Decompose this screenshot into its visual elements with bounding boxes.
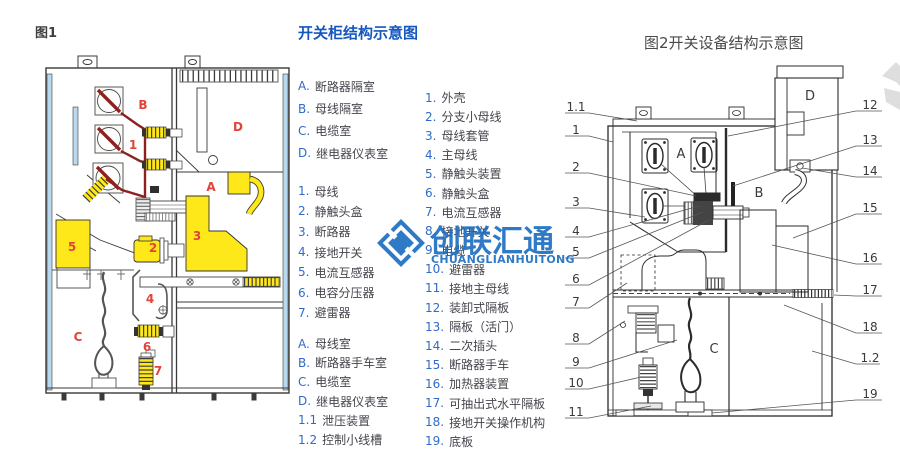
legend-item: 12.装卸式隔板: [425, 298, 545, 317]
legend-item: A.断路器隔室: [298, 75, 388, 97]
fig2-callout-14: 14: [862, 164, 877, 178]
legend-item: B.母线隔室: [298, 97, 388, 119]
legend-item-marker: 5.: [425, 167, 436, 181]
legend-item-text: 接地主母线: [449, 280, 509, 297]
legend-item-marker: C.: [298, 124, 310, 138]
page: 图1 开关柜结构示意图 图2开关设备结构示意图 A.断路器隔室B.母线隔室C.电…: [0, 0, 900, 474]
legend-item: 1.母线: [298, 181, 374, 201]
fig2-callout-17: 17: [862, 283, 877, 297]
legend-item-text: 二次插头: [449, 337, 497, 354]
legend-item-text: 隔板（活门）: [449, 318, 521, 335]
legend-item-text: 断路器: [314, 223, 350, 240]
legend-compartments-fig2: A.母线室B.断路器手车室C.电缆室D.继电器仪表室1.1泄压装置1.2控制小线…: [298, 334, 388, 449]
legend-item: 1.1泄压装置: [298, 411, 388, 430]
legend-item: 14.二次插头: [425, 336, 545, 355]
legend-parts-fig1: 1.母线2.静触头盒3.断路器4.接地开关5.电流互感器6.电容分压器7.避雷器: [298, 181, 374, 323]
legend-item-marker: 6.: [298, 286, 309, 300]
fig1-label-3: 3: [193, 229, 201, 243]
legend-item: 11.接地主母线: [425, 279, 545, 298]
figure1-diagram: A B C D 1 2 3 4 5 6 7: [34, 50, 296, 406]
legend-item: 2.静触头盒: [298, 201, 374, 221]
fig2-callout-18: 18: [862, 320, 877, 334]
fig2-callout-11: 11: [568, 405, 583, 419]
fig1-label-7: 7: [154, 364, 162, 378]
legend-item-text: 接地开关操作机构: [449, 414, 545, 431]
fig2-label-D: D: [805, 89, 815, 104]
legend-item-text: 泄压装置: [322, 412, 370, 429]
legend-item: D.继电器仪表室: [298, 142, 388, 164]
legend-item-marker: 19.: [425, 434, 444, 448]
fig2-callout-9: 9: [572, 355, 580, 369]
figure1-caption: 图1: [35, 22, 57, 41]
legend-item-text: 静触头盒: [441, 185, 489, 202]
legend-item-text: 静触头装置: [441, 165, 501, 182]
legend-item-marker: 1.1: [298, 413, 317, 427]
legend-item-marker: 3.: [425, 129, 436, 143]
legend-item: D.继电器仪表室: [298, 392, 388, 411]
watermark-latin: CHUANGLIANHUITONG: [431, 253, 575, 266]
fig1-label-D: D: [233, 120, 243, 134]
fig2-callout-15: 15: [862, 201, 877, 215]
legend-item: B.断路器手车室: [298, 353, 388, 372]
legend-item-marker: B.: [298, 356, 310, 370]
fig1-label-1: 1: [129, 138, 137, 152]
legend-item-text: 母线室: [315, 335, 351, 352]
legend-item-marker: 12.: [425, 301, 444, 315]
legend-item: C.电缆室: [298, 372, 388, 391]
legend-item-text: 断路器手车: [449, 356, 509, 373]
fig1-label-5: 5: [68, 240, 76, 254]
legend-item-marker: A.: [298, 337, 310, 351]
fig2-callout-6: 6: [572, 272, 580, 286]
legend-item: 2.分支小母线: [425, 107, 545, 126]
legend-item: 6.静触头盒: [425, 183, 545, 202]
legend-item: 5.静触头装置: [425, 164, 545, 183]
figure2-caption: 图2开关设备结构示意图: [644, 32, 804, 53]
figure2-diagram: 1.1 1 2 3 4 5 6 7 8 9 10 11 12 13 14 15 …: [558, 55, 898, 433]
fig2-callout-10: 10: [568, 376, 583, 390]
legend-item: 3.母线套管: [425, 126, 545, 145]
legend-item-text: 加热器装置: [449, 375, 509, 392]
fig2-callout-1-2: 1.2: [860, 351, 879, 365]
legend-item: 3.断路器: [298, 222, 374, 242]
legend-item-marker: A.: [298, 79, 310, 93]
legend-item: 13.隔板（活门）: [425, 317, 545, 336]
legend-item-marker: 4.: [425, 148, 436, 162]
legend-item-text: 接地开关: [314, 244, 362, 261]
legend-compartments-fig1: A.断路器隔室B.母线隔室C.电缆室D.继电器仪表室: [298, 75, 388, 165]
legend-item-marker: 1.: [425, 91, 436, 105]
legend-item-text: 静触头盒: [314, 203, 362, 220]
legend-item-marker: D.: [298, 394, 311, 408]
fig2-callout-13: 13: [862, 133, 877, 147]
legend-item-text: 避雷器: [314, 304, 350, 321]
legend-item: C.电缆室: [298, 120, 388, 142]
fig1-label-B: B: [138, 98, 147, 112]
fig2-callout-4: 4: [572, 224, 580, 238]
legend-item-marker: 1.2: [298, 433, 317, 447]
legend-item: 4.接地开关: [298, 242, 374, 262]
legend-item: 5.电流互感器: [298, 262, 374, 282]
legend-item-marker: 11.: [425, 281, 444, 295]
legend-item-text: 断路器手车室: [315, 354, 387, 371]
legend-item-text: 电缆室: [315, 373, 351, 390]
fig2-callout-7: 7: [572, 295, 580, 309]
legend-item-text: 可抽出式水平隔板: [449, 395, 545, 412]
legend-item-text: 继电器仪表室: [316, 145, 388, 162]
legend-item-marker: C.: [298, 375, 310, 389]
legend-item-text: 断路器隔室: [315, 78, 375, 95]
legend-item-marker: D.: [298, 146, 311, 160]
legend-item-marker: 13.: [425, 320, 444, 334]
fig2-callout-19: 19: [862, 387, 877, 401]
legend-item-marker: 7.: [298, 306, 309, 320]
legend-item-marker: 4.: [298, 245, 309, 259]
fig2-label-B: B: [755, 186, 764, 201]
fig2-callout-1: 1: [572, 123, 580, 137]
fig2-callout-16: 16: [862, 251, 877, 265]
fig1-label-2: 2: [149, 241, 157, 255]
legend-item-marker: 2.: [298, 204, 309, 218]
legend-item-marker: 17.: [425, 396, 444, 410]
legend-item: 16.加热器装置: [425, 374, 545, 393]
fig2-callout-2: 2: [572, 160, 580, 174]
legend-item-text: 母线隔室: [315, 100, 363, 117]
fig1-label-4: 4: [146, 292, 154, 306]
legend-item-text: 控制小线槽: [322, 431, 382, 448]
fig2-label-C: C: [709, 342, 718, 357]
legend-item-text: 继电器仪表室: [316, 393, 388, 410]
legend-item-marker: 15.: [425, 358, 444, 372]
watermark: 创联汇通 CHUANGLIANHUITONG: [374, 204, 570, 280]
legend-item-marker: 1.: [298, 184, 309, 198]
legend-item-text: 母线套管: [441, 127, 489, 144]
legend-item: 7.避雷器: [298, 303, 374, 323]
legend-item-marker: 14.: [425, 339, 444, 353]
fig2-callout-3: 3: [572, 195, 580, 209]
legend-item-text: 电流互感器: [314, 264, 374, 281]
fig1-label-6: 6: [143, 340, 151, 354]
legend-title: 开关柜结构示意图: [298, 22, 418, 43]
legend-item: 6.电容分压器: [298, 282, 374, 302]
legend-item-text: 外壳: [441, 89, 465, 106]
fig2-callout-8: 8: [572, 331, 580, 345]
legend-item: 15.断路器手车: [425, 355, 545, 374]
legend-item-marker: 3.: [298, 225, 309, 239]
legend-item-text: 电容分压器: [314, 284, 374, 301]
watermark-logo-icon: [376, 218, 426, 268]
fig2-label-A: A: [677, 147, 686, 162]
watermark-fragment: [874, 58, 900, 118]
legend-item-text: 底板: [449, 433, 473, 450]
legend-item-text: 母线: [314, 183, 338, 200]
legend-item-marker: 16.: [425, 377, 444, 391]
legend-item-marker: 6.: [425, 186, 436, 200]
legend-item: 19.底板: [425, 432, 545, 451]
legend-item-text: 分支小母线: [441, 108, 501, 125]
legend-item: 17.可抽出式水平隔板: [425, 394, 545, 413]
fig1-label-A: A: [206, 180, 216, 194]
legend-item: 1.2控制小线槽: [298, 430, 388, 449]
legend-item-marker: 18.: [425, 415, 444, 429]
fig1-label-C: C: [74, 330, 83, 344]
legend-item-marker: B.: [298, 102, 310, 116]
legend-item: 18.接地开关操作机构: [425, 413, 545, 432]
legend-item-marker: 2.: [425, 110, 436, 124]
fig2-callout-1-1: 1.1: [566, 100, 585, 114]
legend-item-text: 电缆室: [315, 122, 351, 139]
legend-item-marker: 5.: [298, 265, 309, 279]
legend-item-text: 装卸式隔板: [449, 299, 509, 316]
legend-item-text: 主母线: [441, 146, 477, 163]
legend-item: A.母线室: [298, 334, 388, 353]
legend-item: 4.主母线: [425, 145, 545, 164]
legend-item: 1.外壳: [425, 88, 545, 107]
